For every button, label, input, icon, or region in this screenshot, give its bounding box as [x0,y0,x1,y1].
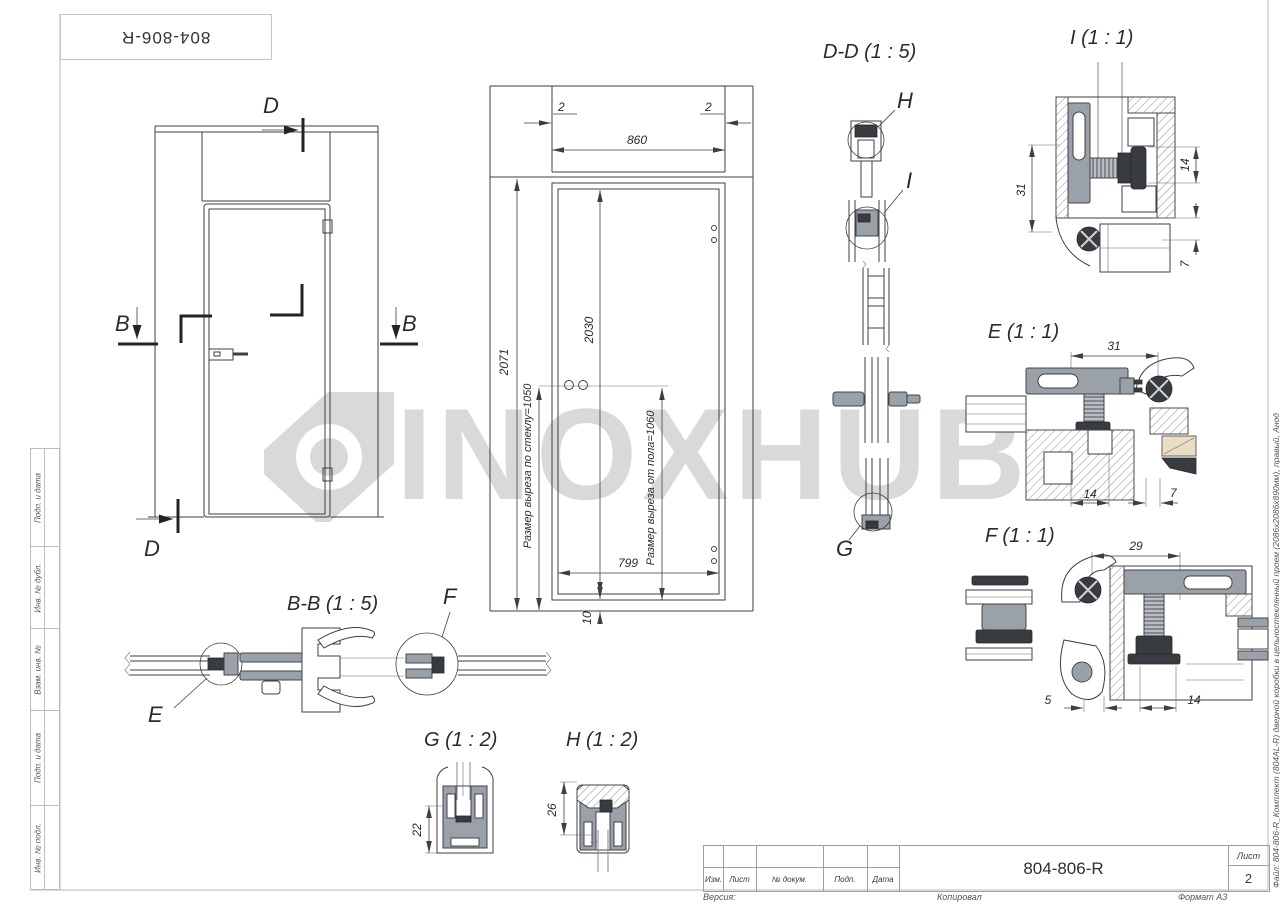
col-podp: Подп. [823,867,867,891]
detail-g-title: G (1 : 2) [424,729,497,751]
detail-label-e: E [148,702,163,727]
dimensioned-elevation-view: 2 2 860 2071 Размер выреза по стеклу=105… [490,86,753,625]
section-label-b-left: B [115,311,130,336]
section-bb-title: B-B (1 : 5) [287,593,378,615]
dim-height-total: 2071 [497,349,511,377]
side-box-label: Инв. № дубл. [34,563,43,612]
detail-f-dim-5: 5 [1045,693,1052,707]
drawing-sheet: INOXHUB D B B [0,0,1280,905]
detail-label-g: G [836,536,853,561]
detail-f-dim-14: 14 [1187,693,1201,707]
detail-f-view: F (1 : 1) 29 5 [966,525,1268,712]
detail-g-view: G (1 : 2) 22 [410,729,497,853]
pivot-hole [1072,662,1092,682]
top-mirrored-number: 804-806-R [121,27,210,47]
detail-e-title: E (1 : 1) [988,321,1059,343]
divider [44,547,45,628]
sheet-number: 2 [1228,865,1269,891]
dim-glass-note: Размер выреза по стеклу=1050 [522,383,534,549]
side-box-label: Подп. и дата [34,472,43,522]
side-box-podp2: Подп. и дата [31,711,59,806]
drawing-canvas: INOXHUB D B B [0,0,1280,905]
stud-thread [1084,394,1104,424]
divider [44,449,45,546]
side-box-label: Взам. инв. № [34,645,43,694]
col-data: Дата [867,867,899,891]
dim-width: 860 [627,133,647,147]
divider [44,806,45,889]
detail-label-f: F [443,584,458,609]
sheet-label: Лист [1228,846,1269,865]
side-box-vzam-inv: Взам. инв. № [31,629,59,711]
footer-copied: Копировал [937,892,982,902]
stud-thread [1144,594,1164,636]
handle-shaft-left [833,392,864,406]
corner-mark-left [181,316,212,343]
detail-label-i: I [906,168,912,193]
divider [44,629,45,710]
detail-i-dim-7: 7 [1178,259,1192,267]
door-handle [209,349,248,360]
dim-floor-note: Размер выреза от пола=1060 [645,410,657,566]
file-note-text: Файл: 804-806-R_Комплект (804AL-R) дверн… [1271,413,1280,888]
dim-width-leaf: 799 [618,556,638,570]
detail-h-title: H (1 : 2) [566,729,638,751]
detail-h-view: H (1 : 2) 26 [545,729,638,872]
section-label-d-top: D [263,93,279,118]
detail-f-title: F (1 : 1) [985,525,1055,547]
drawing-number: 804-806-R [899,846,1228,891]
clamp-cylinder [982,604,1026,630]
section-dd-title: D-D (1 : 5) [823,41,916,63]
col-list: Лист [723,867,756,891]
detail-i-dim-14: 14 [1178,158,1192,172]
title-block: Изм. Лист № докум. Подп. Дата 804-806-R … [703,845,1270,892]
dim-bottom-gap: 10 [580,611,594,625]
side-box-label: Инв. № подл. [34,823,43,873]
hinge-top [323,220,332,233]
detail-label-h: H [897,88,913,113]
file-note-column: Файл: 804-806-R_Комплект (804AL-R) дверн… [1269,250,1280,888]
side-box-inv-dubl: Инв. № дубл. [31,547,59,629]
col-izm: Изм. [704,867,723,891]
side-box-podp1: Подп. и дата [31,449,59,547]
watermark-text: INOXHUB [396,381,1030,527]
handle-shaft-right [889,392,907,406]
detail-i-dim-31: 31 [1014,183,1028,196]
dim-gap-right: 2 [704,100,712,114]
side-box-label: Подп. и дата [34,733,43,783]
col-doc: № докум. [756,867,823,891]
gost-side-column: Подп. и дата Инв. № дубл. Взам. инв. № П… [30,448,60,890]
detail-circle-f [396,633,458,695]
detail-g-dim-22: 22 [410,823,424,838]
side-box-inv-podl: Инв. № подл. [31,806,59,889]
detail-e-dim-14: 14 [1083,487,1097,501]
divider [44,711,45,805]
top-mirrored-stamp: 804-806-R [60,14,272,60]
bolt-head [1131,147,1146,189]
detail-e-dim-31: 31 [1107,339,1120,353]
detail-e-dim-7: 7 [1170,486,1178,500]
section-label-d-bottom: D [144,536,160,561]
footer-format: Формат A3 [1178,892,1227,902]
detail-f-dim-29: 29 [1128,539,1143,553]
section-bb-view: B-B (1 : 5) E F [125,584,551,727]
corner-mark-right [270,284,302,315]
detail-i-view: I (1 : 1) 31 14 7 [1014,27,1200,272]
detail-h-dim-26: 26 [545,803,559,818]
dim-gap-left: 2 [557,100,565,114]
section-label-b-right: B [402,311,417,336]
dim-height-leaf: 2030 [582,316,596,344]
thumbturn [262,681,280,694]
footer-version: Версия: [703,892,736,902]
bolt-thread [1090,158,1118,178]
detail-i-title: I (1 : 1) [1070,27,1133,49]
inoxhub-logo-icon [264,392,394,522]
